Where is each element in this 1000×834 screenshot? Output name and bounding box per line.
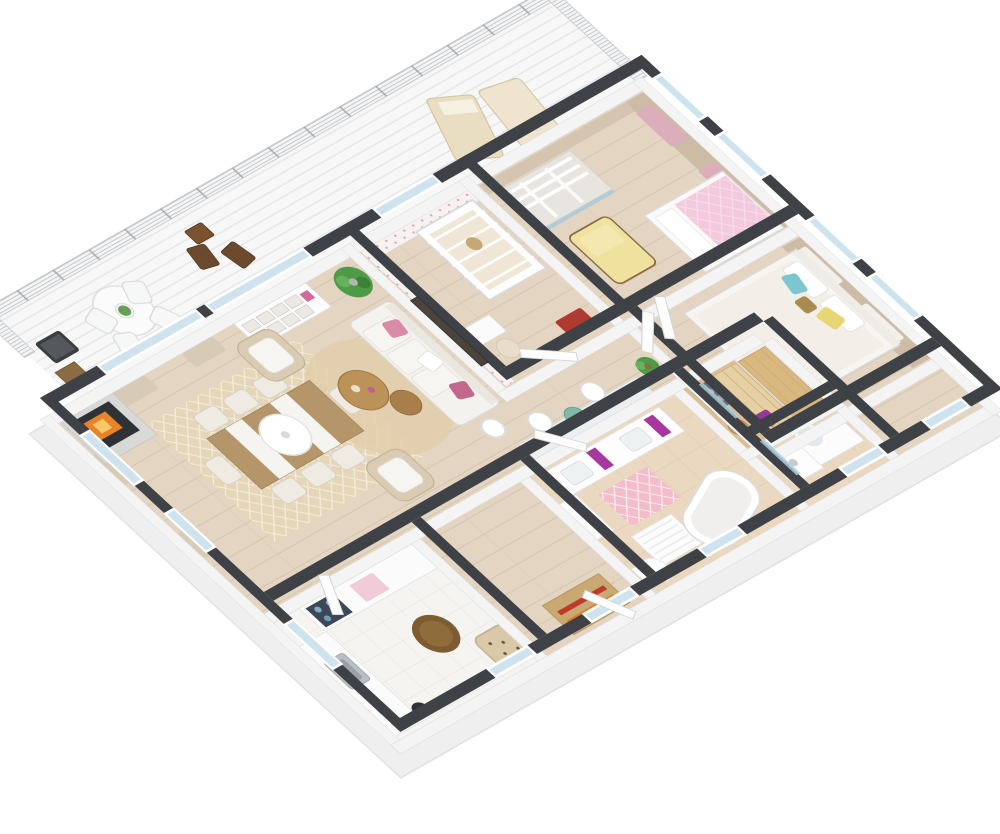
master-door[interactable]: [642, 311, 654, 354]
floor-plan-canvas: [0, 0, 1000, 834]
floor-plan-svg: [0, 0, 1000, 834]
